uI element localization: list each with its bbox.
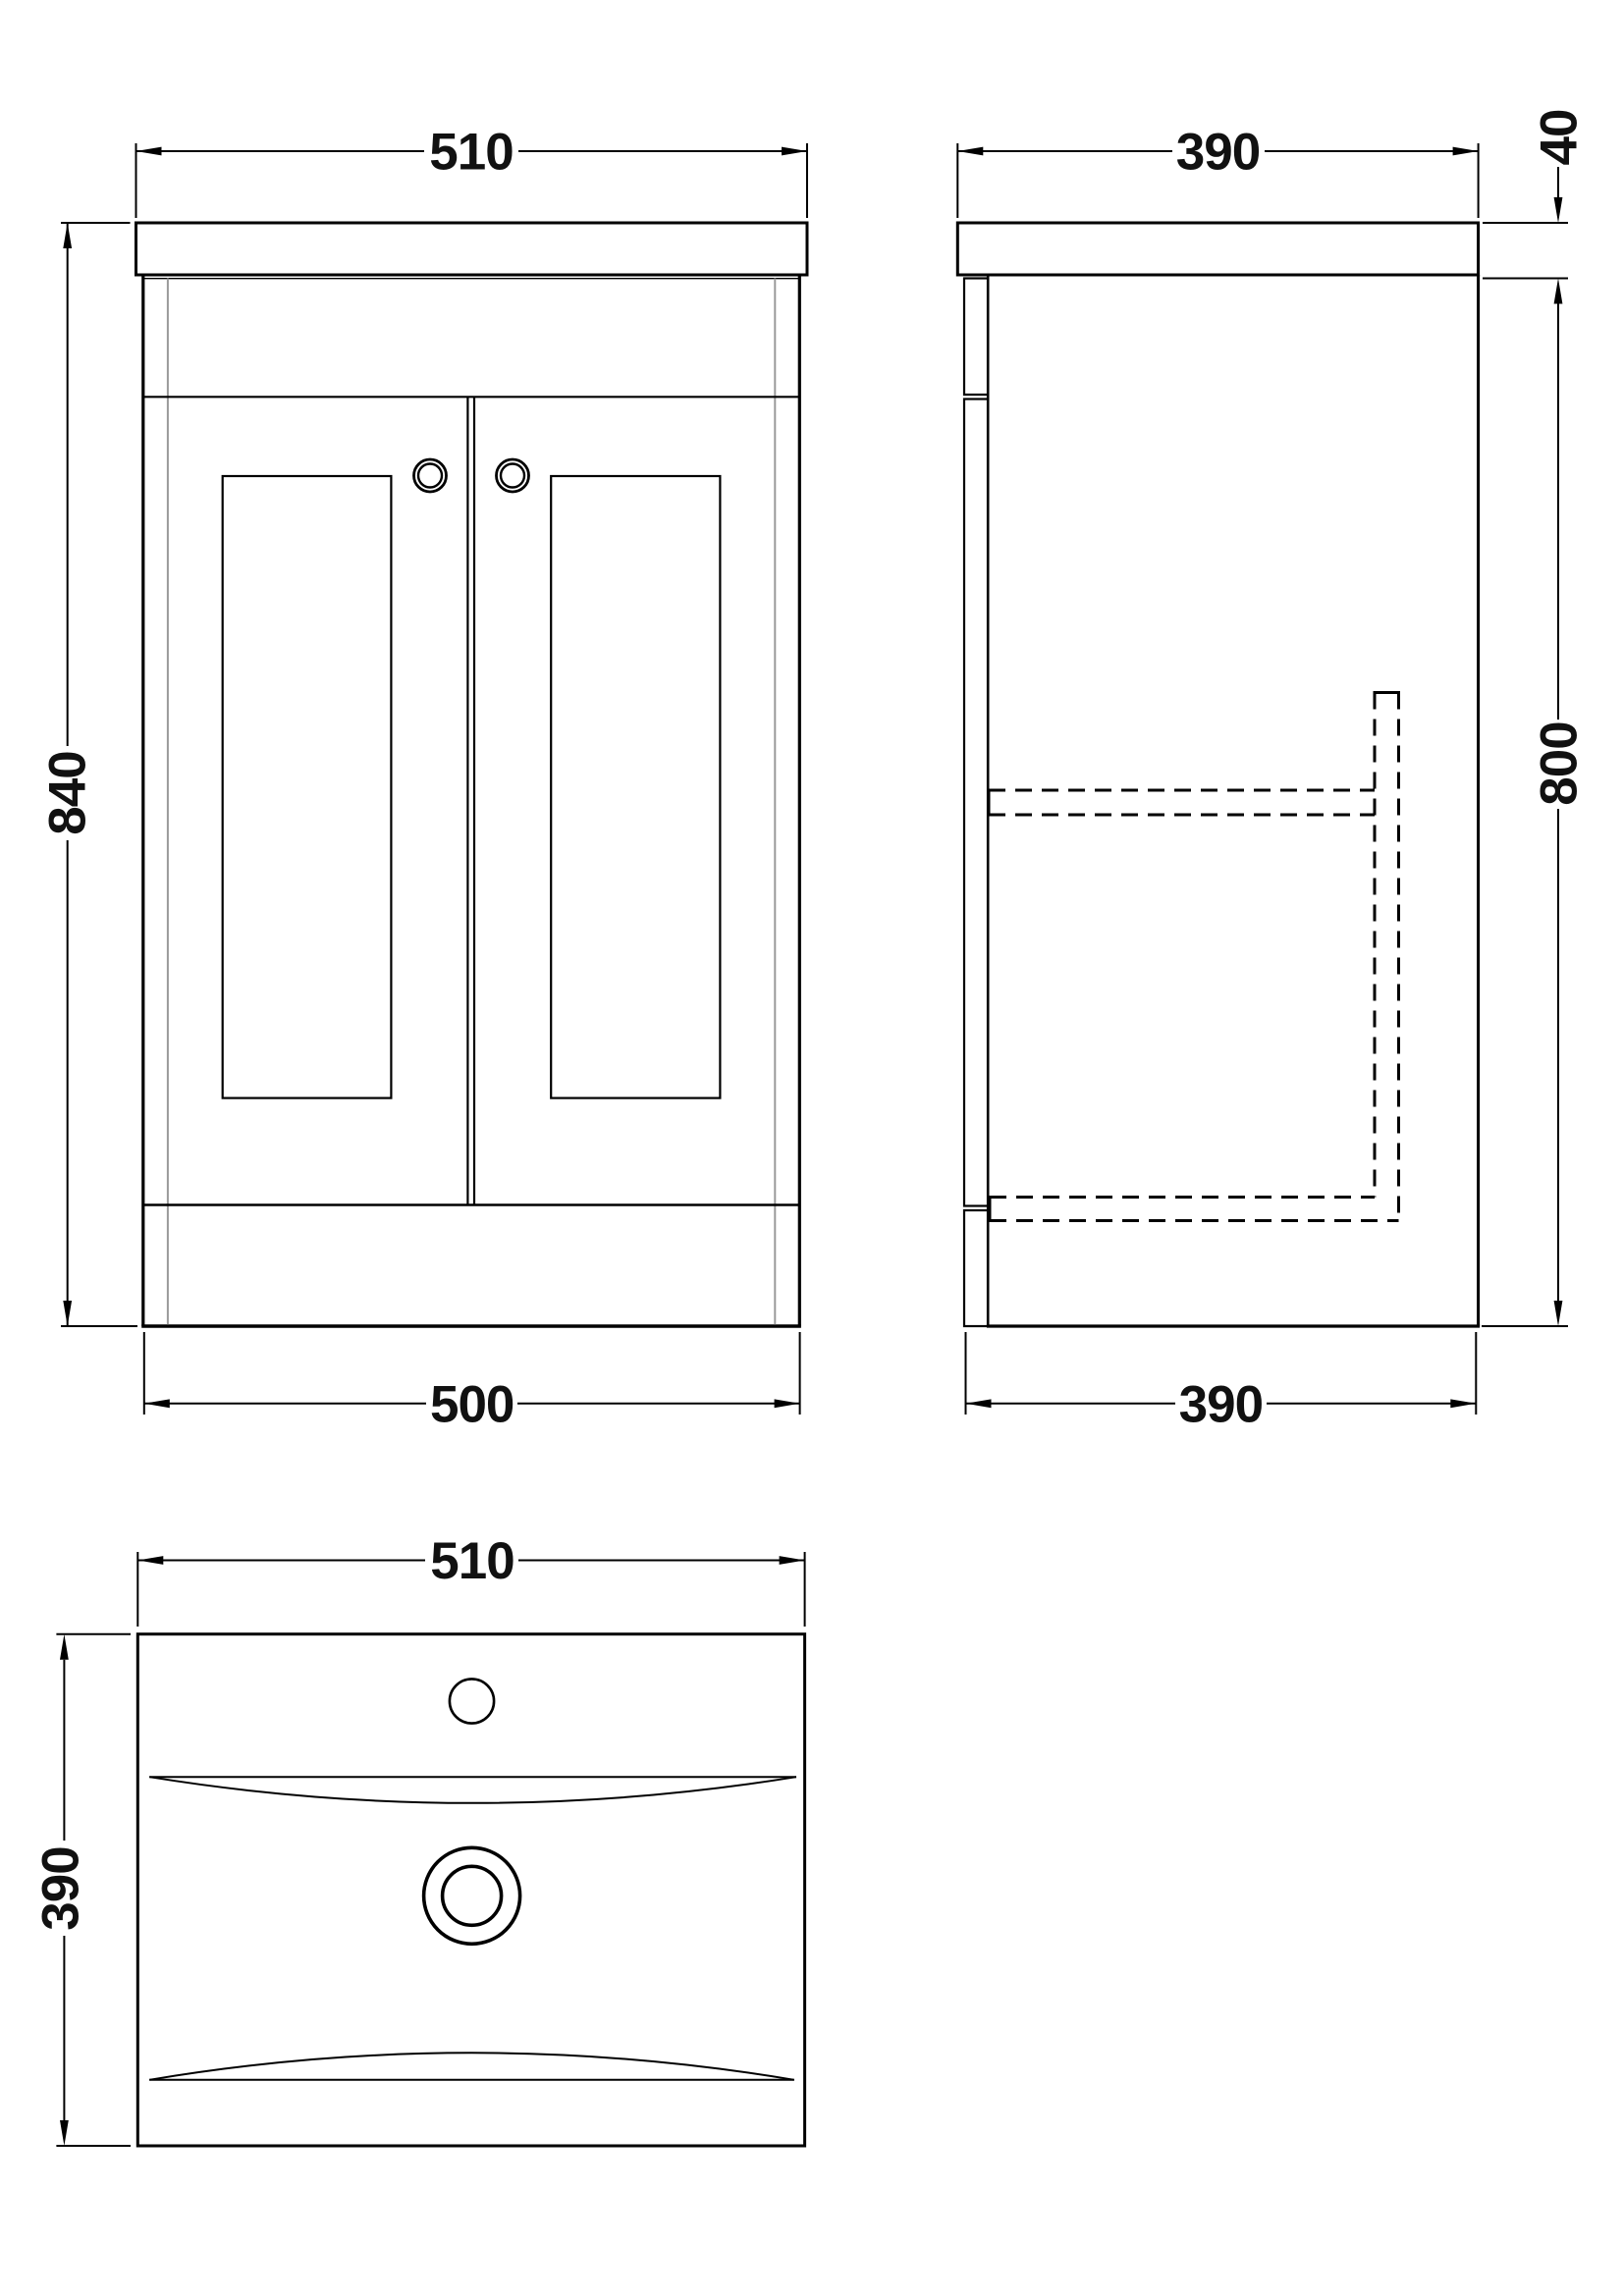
svg-text:510: 510 xyxy=(430,1532,514,1590)
svg-text:500: 500 xyxy=(430,1376,514,1434)
svg-text:390: 390 xyxy=(1179,1376,1263,1434)
svg-text:390: 390 xyxy=(1176,124,1260,182)
svg-text:40: 40 xyxy=(1531,110,1589,166)
svg-text:510: 510 xyxy=(429,124,513,182)
svg-text:840: 840 xyxy=(39,751,97,834)
svg-text:800: 800 xyxy=(1531,721,1589,805)
svg-text:390: 390 xyxy=(32,1846,90,1930)
